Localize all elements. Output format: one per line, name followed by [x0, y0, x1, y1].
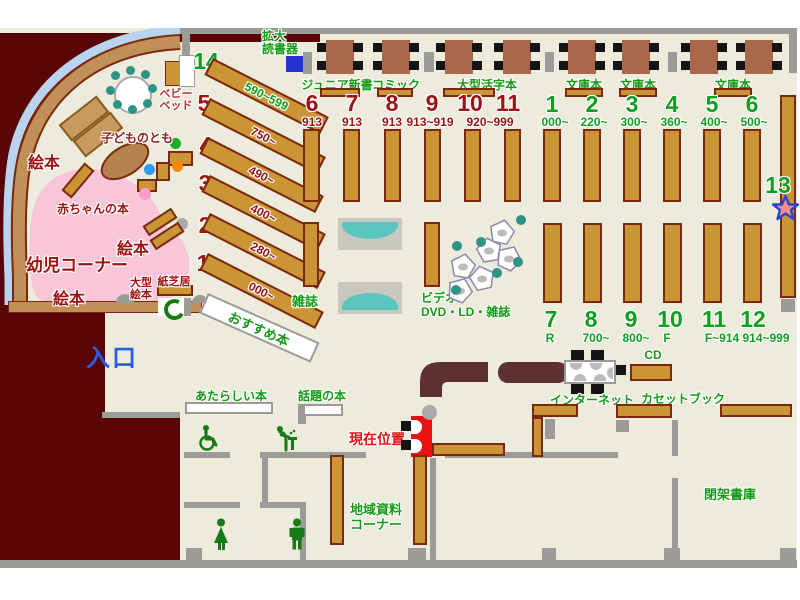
bookshelf [583, 129, 601, 202]
section-g3-number: 3 [626, 93, 639, 116]
chair [141, 70, 150, 79]
section-b9-number: 9 [625, 308, 638, 331]
shelf-L [532, 404, 578, 417]
section-g4-number: 4 [666, 93, 679, 116]
wall-stacks-v1 [672, 420, 678, 456]
study-carrels [445, 212, 545, 307]
section-9-number: 9 [426, 92, 439, 115]
section-b10-number: 10 [657, 308, 683, 331]
section-g1-range: 000~ [541, 116, 568, 128]
chair [111, 71, 120, 80]
library-floor-map: 入口 子どものとも 絵 [0, 0, 800, 600]
step-shelf [156, 162, 170, 181]
bookshelf [663, 223, 682, 303]
cd-shelf [630, 364, 672, 381]
shelf-L-vert [532, 417, 543, 457]
bookshelf [623, 129, 641, 202]
stool-orange [172, 161, 183, 172]
reading-table [317, 40, 363, 74]
bookshelf [663, 129, 681, 202]
section-g4-range: 360~ [660, 116, 687, 128]
bookshelf [583, 223, 602, 303]
section-6-number: 6 [306, 92, 319, 115]
table-partition [668, 52, 677, 72]
section-g1-number: 1 [546, 93, 559, 116]
reading-table [736, 40, 782, 74]
section-b10-range: F [663, 332, 670, 344]
baby-books-label: 赤ちゃんの本 [57, 200, 129, 217]
service-counter [418, 360, 570, 400]
section-11-number: 11 [496, 92, 520, 115]
magnifier-partition [303, 52, 312, 74]
stool-blue [144, 164, 155, 175]
large-picture-books-label: 絵本 [130, 286, 152, 302]
shelf-by-marker [432, 443, 505, 456]
pillar [664, 548, 680, 560]
shelf [720, 404, 792, 417]
pillar-round [422, 405, 437, 420]
bookshelf [504, 129, 521, 202]
video-shelf [424, 222, 440, 287]
magnifier-label: 読書器 [262, 40, 298, 57]
wall-cassette [530, 452, 618, 458]
bookshelf [703, 129, 721, 202]
kodomonotomo-label: 子どものとも [101, 129, 173, 146]
internet-chair [591, 350, 604, 360]
reading-table [494, 40, 540, 74]
pillar [542, 548, 556, 560]
pillar [408, 548, 426, 560]
section-g2-number: 2 [586, 93, 599, 116]
bookshelf [303, 129, 320, 202]
picture-books-label: 絵本 [53, 285, 85, 309]
chair [128, 105, 137, 114]
section-g6-number: 6 [746, 93, 759, 116]
bookshelf [543, 129, 561, 202]
wall-toilet-mid-1 [184, 502, 240, 508]
entrance-label: 入口 [86, 338, 138, 373]
section-b9-range: 800~ [622, 332, 649, 344]
reading-table [373, 40, 419, 74]
kamishibai-label: 紙芝居 [158, 273, 191, 289]
section-b12-range: 914~999 [742, 332, 789, 344]
closed-stacks-label: 閉架書庫 [704, 484, 756, 503]
bookshelf [424, 129, 441, 202]
reading-table [681, 40, 727, 74]
wall-toilet-top-2 [260, 452, 366, 458]
section-7-number: 7 [346, 92, 359, 115]
reading-table [436, 40, 482, 74]
section-10-11-range: 920~999 [466, 116, 513, 128]
wall-bottom [0, 560, 797, 568]
reading-table [559, 40, 605, 74]
table-partition [545, 52, 554, 72]
pillar [780, 548, 796, 560]
section-6-range: 913 [302, 116, 322, 128]
wheelchair-icon [196, 424, 224, 452]
wall-toilet-top-1 [184, 452, 230, 458]
magazines-label: 雑誌 [292, 291, 318, 310]
section-g6-range: 500~ [740, 116, 767, 128]
bookshelf [703, 223, 722, 303]
cd-label: CD [644, 348, 661, 362]
section-b11-number: 11 [702, 308, 726, 331]
local-materials-shelf [413, 455, 427, 545]
chair [148, 84, 157, 93]
mens-toilet-icon [286, 518, 308, 550]
current-location-marker [399, 416, 433, 457]
section-8-range: 913 [382, 116, 402, 128]
section-b12-number: 12 [740, 308, 766, 331]
section-10-number: 10 [457, 92, 483, 115]
magazine-shelf [303, 222, 319, 287]
new-books-shelf [185, 402, 273, 414]
section-8-number: 8 [386, 92, 399, 115]
internet-table [564, 360, 616, 384]
chair [143, 99, 152, 108]
bookshelf [343, 129, 360, 202]
chair [126, 66, 135, 75]
womens-toilet-icon [210, 518, 232, 550]
internet-device [616, 365, 626, 375]
current-location-label: 現在位置 [349, 429, 405, 449]
section-g3-range: 300~ [620, 116, 647, 128]
local-materials-label: コーナー [350, 514, 402, 533]
section-b11-range: F~914 [705, 332, 739, 344]
baby-bed-label: ベッド [160, 97, 193, 113]
wall-toilet-v1 [262, 458, 268, 506]
shelf-block [545, 419, 555, 439]
bookshelf [623, 223, 642, 303]
topic-books-label: 話題の本 [298, 387, 346, 404]
magnifier-device-icon [286, 56, 303, 72]
section-13-number: 13 [765, 174, 791, 197]
bookshelf [743, 129, 761, 202]
shelf-block [616, 420, 629, 432]
bookshelf [464, 129, 481, 202]
wall-top-right-stub [789, 28, 797, 73]
section-g2-range: 220~ [580, 116, 607, 128]
table-partition [424, 52, 434, 72]
pillar [186, 548, 202, 560]
stool-pink [139, 188, 151, 200]
local-materials-shelf [330, 455, 344, 545]
pillar-shelf13 [781, 299, 795, 312]
baby-changing-icon [272, 424, 300, 452]
topic-books-shelf [303, 404, 343, 416]
reading-table [613, 40, 659, 74]
picture-books-label: 絵本 [28, 149, 60, 173]
section-g5-number: 5 [706, 93, 719, 116]
bookshelf [384, 129, 401, 202]
section-7-range: 913 [342, 116, 362, 128]
chair [106, 86, 115, 95]
wall-corridor [102, 412, 180, 418]
section-b7-number: 7 [545, 308, 558, 331]
section-b8-number: 8 [585, 308, 598, 331]
bookshelf [543, 223, 562, 303]
wall-room-v [430, 458, 436, 560]
section-9-range: 913~919 [406, 116, 453, 128]
section-b8-range: 700~ [582, 332, 609, 344]
chair [113, 100, 122, 109]
shelf [616, 404, 672, 418]
star-icon [772, 195, 799, 221]
phone-nook-wall [184, 298, 191, 316]
toddler-corner-label: 幼児コーナー [26, 251, 128, 276]
section-b7-range: R [546, 332, 555, 344]
internet-chair [571, 350, 584, 360]
section-g5-range: 400~ [700, 116, 727, 128]
bookshelf [743, 223, 762, 303]
